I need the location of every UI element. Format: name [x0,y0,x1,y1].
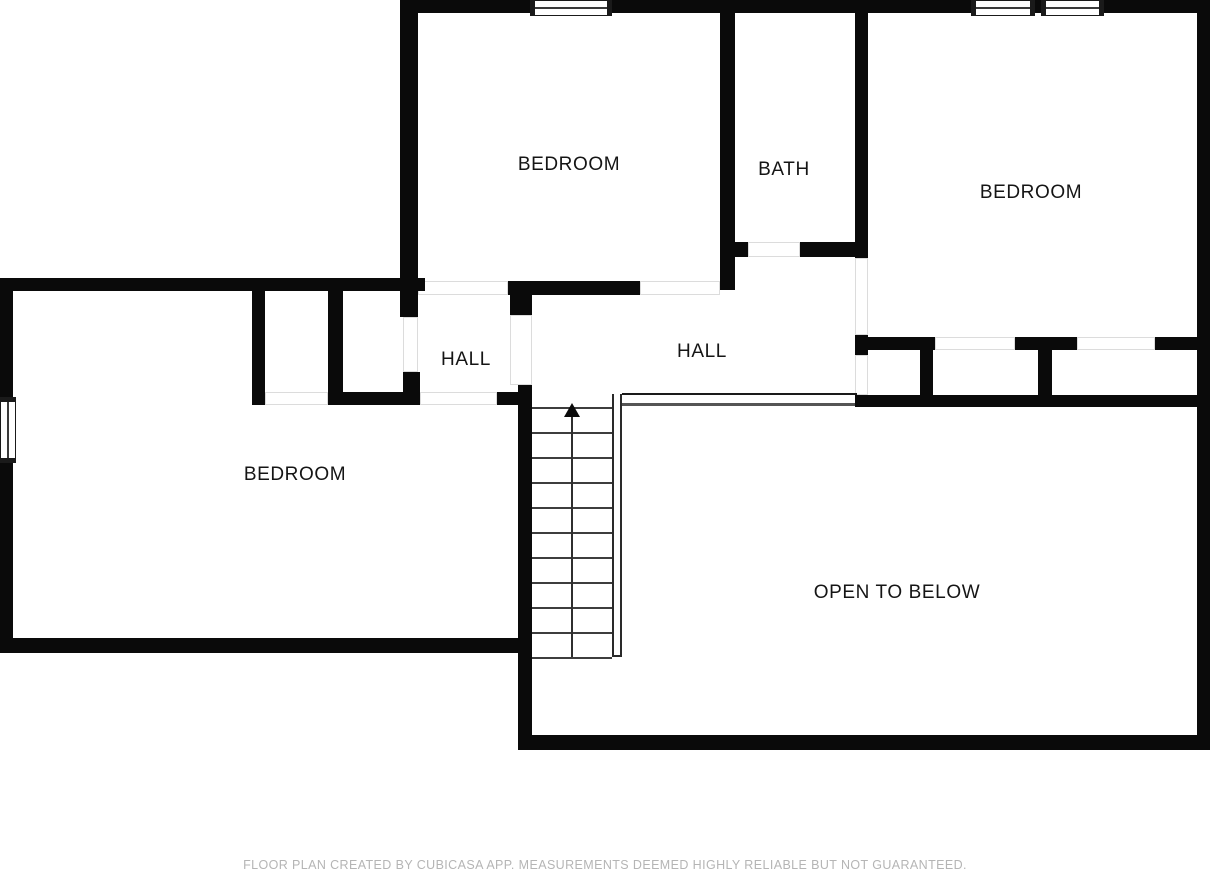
bath-door [748,242,800,257]
hall-left-door [403,317,418,372]
strip-left-opening [855,355,868,395]
stair-direction-line [571,415,573,657]
left-bedroom-window-frame [7,398,9,462]
closet-strip-bottom-wall [855,395,1197,407]
top-bedroom-left-wall [400,0,418,317]
left-bedroom-door [420,392,497,405]
closet-a-door [265,392,328,405]
left-bedroom-window-frame [1,458,15,462]
stair-up-arrow-icon [564,403,580,417]
right-bedroom-window-1-frame [972,1,976,15]
right-bedroom-window-1-frame [972,7,1034,9]
right-bedroom-entry-door [855,258,868,335]
divider-bottom-stub [855,335,868,355]
stair-right-rail [612,394,622,657]
top-bedroom-door-left [418,281,508,295]
room-label-bedroom-top: BEDROOM [518,154,620,176]
room-label-hall-center: HALL [677,341,727,363]
right-bedroom-window-2-frame [1099,1,1103,15]
room-label-bath: BATH [758,159,810,181]
closet-a-left-wall [252,291,265,405]
right-bedroom-window-1-frame [1030,1,1034,15]
closet-strip-stub-1 [920,337,933,397]
closet-strip-stub-2 [1038,337,1052,397]
room-label-open-to-below: OPEN TO BELOW [814,582,981,604]
right-closet-door-1 [935,337,1015,350]
floor-plan: FLOOR PLAN CREATED BY CUBICASA APP. MEAS… [0,0,1210,875]
hall-bedroom-divider-wall [855,13,868,258]
footer-disclaimer: FLOOR PLAN CREATED BY CUBICASA APP. MEAS… [0,858,1210,872]
right-bedroom-bottom-wall-3 [1155,337,1210,350]
room-label-bedroom-right: BEDROOM [980,182,1082,204]
left-outer-wall [0,278,13,653]
closet-b-left-wall [328,291,343,405]
right-bedroom-window-2-frame [1042,7,1103,9]
left-bedroom-window-window-icon [0,397,16,463]
top-bedroom-bottom-wall [508,281,640,295]
top-bedroom-door-right [640,281,720,295]
right-outer-wall [1197,0,1210,750]
hall-left-bottom-stub [403,372,420,405]
bath-bottom-stub [720,242,748,257]
top-bedroom-window-frame [531,7,611,9]
room-label-bedroom-left: BEDROOM [244,464,346,486]
left-bedroom-bottom-wall [0,638,532,653]
right-closet-door-2 [1077,337,1155,350]
railing-bottom-line [620,403,857,406]
left-area-top-wall [0,278,425,291]
right-bedroom-window-2-window-icon [1041,0,1104,16]
room-label-hall-left: HALL [441,349,491,371]
stair-left-wall [518,385,532,750]
hall-right-door [510,315,532,385]
stair-tread [532,657,612,659]
open-below-bottom-wall [518,735,1210,750]
right-bedroom-window-1-window-icon [971,0,1035,16]
staircase [532,395,612,657]
railing-top-line [622,393,857,395]
top-bedroom-window-window-icon [530,0,612,16]
hall-right-bottom-stub [497,392,532,405]
right-bedroom-window-2-frame [1042,1,1046,15]
left-bedroom-window-frame [1,398,15,402]
top-bedroom-window-frame [531,1,535,15]
top-bedroom-window-frame [607,1,611,15]
